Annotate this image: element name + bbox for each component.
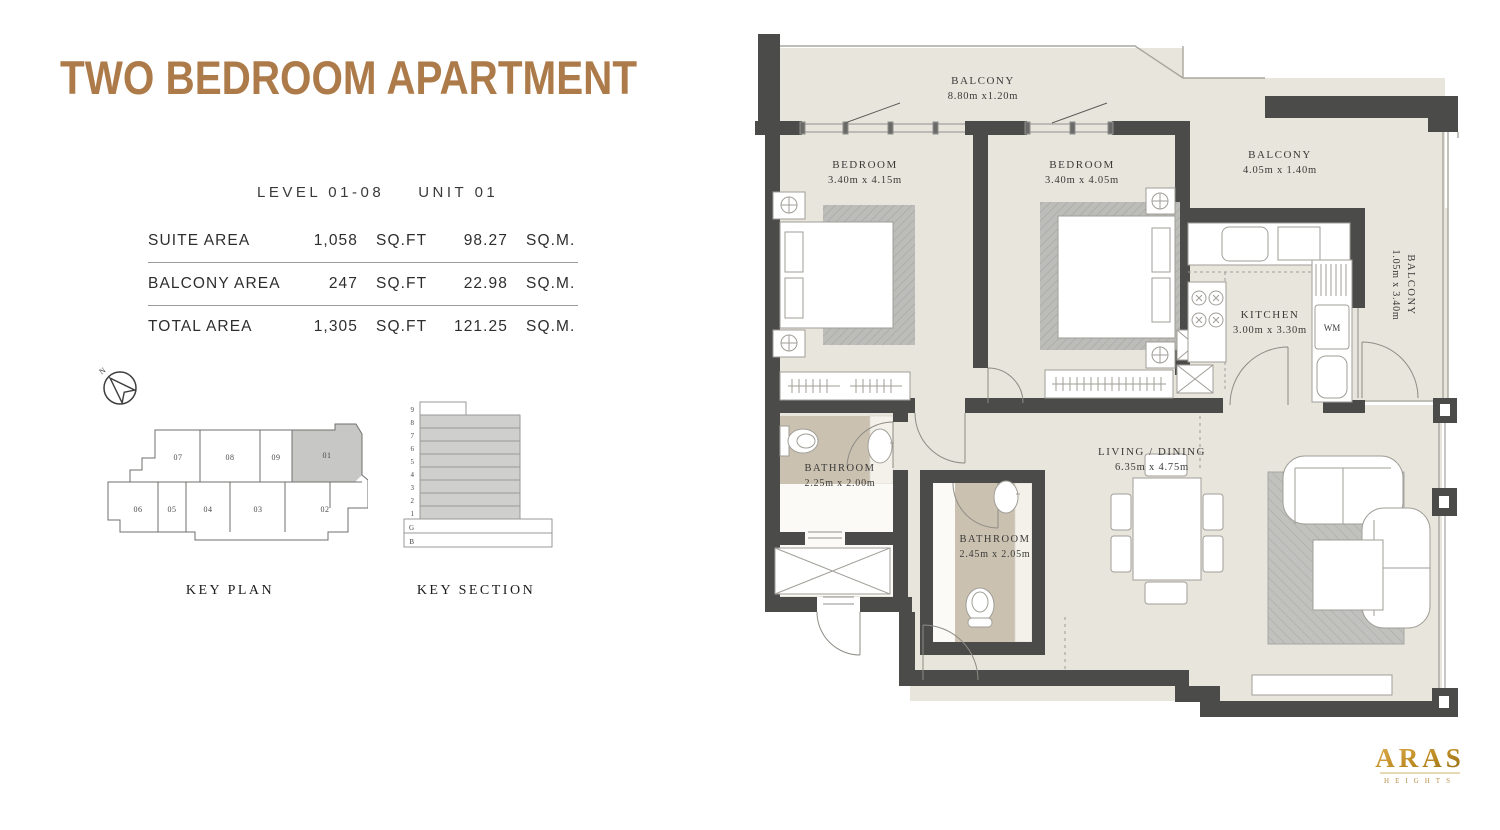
key-section-level: 7 [411, 432, 415, 440]
key-section-level: 2 [411, 497, 415, 505]
key-section-basement-box [404, 533, 552, 547]
sqm-value: 98.27 [436, 232, 508, 250]
page-title: TWO BEDROOM APARTMENT [60, 50, 637, 105]
room-dims: 6.35m x 4.75m [1115, 462, 1189, 473]
sqft-unit: SQ.FT [358, 275, 436, 293]
key-section: 9 8 7 6 5 4 3 2 1 G B [398, 400, 554, 550]
room-label: BALCONY [1405, 254, 1416, 315]
sqm-unit: SQ.M. [508, 232, 578, 250]
north-label: N [97, 366, 107, 377]
brand-logo: ARAS HEIGHTS [1358, 740, 1483, 790]
room-dims: 1.05m x 3.40m [1390, 250, 1401, 321]
room-label: BALCONY [951, 75, 1015, 87]
room-dims: 3.40m x 4.05m [1045, 175, 1119, 186]
room-label: KITCHEN [1241, 309, 1300, 321]
room-label: BALCONY [1248, 149, 1312, 161]
room-dims: 4.05m x 1.40m [1243, 165, 1317, 176]
room-dims: 8.80m x1.20m [948, 91, 1019, 102]
area-table: SUITE AREA 1,058 SQ.FT 98.27 SQ.M. BALCO… [148, 220, 578, 348]
room-label: BATHROOM [805, 463, 876, 474]
key-section-level: 9 [411, 406, 415, 414]
key-plan-unit: 03 [254, 505, 263, 514]
sqft-unit: SQ.FT [358, 232, 436, 250]
unit-label: UNIT 01 [418, 184, 498, 201]
floor-plan: BALCONY 8.80m x1.20m BEDROOM 3.40m x 4.1… [740, 20, 1500, 790]
room-label: LIVING / DINING [1098, 446, 1206, 458]
brand-name: ARAS [1375, 743, 1465, 773]
sqm-unit: SQ.M. [508, 318, 578, 336]
key-plan-unit: 06 [134, 505, 143, 514]
row-label: SUITE AREA [148, 232, 308, 250]
level-unit-line: LEVEL 01-08UNIT 01 [257, 184, 498, 201]
key-plan-caption: KEY PLAN [105, 583, 355, 599]
key-section-highlight-floors [420, 415, 520, 519]
sqft-unit: SQ.FT [358, 318, 436, 336]
key-section-level-9-box [420, 402, 466, 415]
key-section-level: 5 [411, 458, 415, 466]
washing-machine-label: WM [1324, 323, 1341, 333]
key-section-level: 1 [411, 510, 415, 518]
sqm-value: 121.25 [436, 318, 508, 336]
key-section-ground-box [404, 519, 552, 533]
row-label: TOTAL AREA [148, 318, 308, 336]
key-section-level: 8 [411, 419, 415, 427]
sqm-value: 22.98 [436, 275, 508, 293]
room-label: BEDROOM [832, 159, 898, 171]
key-plan-unit: 08 [226, 453, 235, 462]
room-dims: 3.00m x 3.30m [1233, 325, 1307, 336]
compass-icon: N [96, 362, 142, 408]
key-section-level: 6 [411, 445, 415, 453]
key-section-level: B [409, 538, 414, 546]
key-section-caption: KEY SECTION [398, 583, 554, 599]
key-section-level: 3 [411, 484, 415, 492]
room-label: BEDROOM [1049, 159, 1115, 171]
table-row: BALCONY AREA 247 SQ.FT 22.98 SQ.M. [148, 263, 578, 306]
key-section-level: 4 [411, 471, 415, 479]
key-plan-unit: 02 [321, 505, 330, 514]
key-plan-unit: 04 [204, 505, 213, 514]
key-section-level: G [409, 524, 414, 532]
key-plan-unit: 07 [174, 453, 183, 462]
room-dims: 2.25m x 2.00m [805, 478, 876, 489]
sqft-value: 1,305 [308, 318, 358, 336]
table-row: SUITE AREA 1,058 SQ.FT 98.27 SQ.M. [148, 220, 578, 263]
sqm-unit: SQ.M. [508, 275, 578, 293]
level-label: LEVEL 01-08 [257, 184, 384, 201]
brand-subtitle: HEIGHTS [1384, 777, 1456, 785]
room-dims: 3.40m x 4.15m [828, 175, 902, 186]
key-plan-unit-highlighted: 01 [323, 451, 332, 460]
row-label: BALCONY AREA [148, 275, 308, 293]
sqft-value: 247 [308, 275, 358, 293]
sqft-value: 1,058 [308, 232, 358, 250]
table-row: TOTAL AREA 1,305 SQ.FT 121.25 SQ.M. [148, 306, 578, 348]
room-label: BATHROOM [960, 534, 1031, 545]
key-plan-unit: 05 [168, 505, 177, 514]
key-plan-unit: 09 [272, 453, 281, 462]
room-dims: 2.45m x 2.05m [960, 549, 1031, 560]
key-plan: 07 08 09 01 06 05 04 03 02 [100, 420, 368, 550]
